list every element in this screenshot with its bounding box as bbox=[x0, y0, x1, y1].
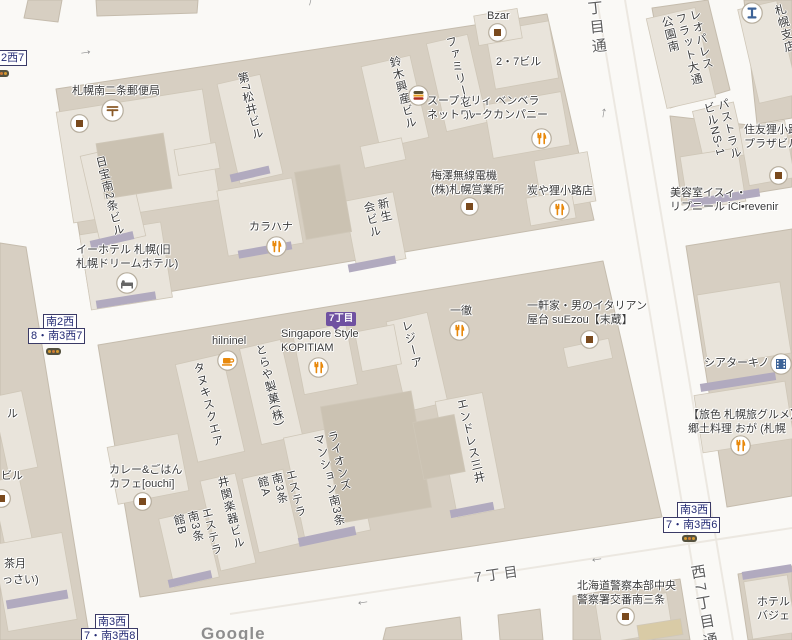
restaurant-icon[interactable] bbox=[549, 199, 570, 225]
generic-icon[interactable] bbox=[616, 607, 635, 631]
poi-label[interactable]: っさい) bbox=[2, 574, 39, 588]
poi-label-line: リプニール iCi•revenir bbox=[670, 201, 778, 215]
block-address-badge: 2西7 bbox=[0, 50, 27, 66]
traffic-light-dot bbox=[692, 537, 695, 540]
restaurant-icon[interactable] bbox=[449, 320, 470, 346]
poi-label[interactable]: 住友狸小路プラザビル bbox=[744, 124, 792, 151]
traffic-light-dot bbox=[4, 72, 7, 75]
poi-label-line: ネットワークカンパニー bbox=[427, 109, 548, 123]
poi-label-line: ビル bbox=[1, 470, 23, 484]
poi-label[interactable]: イーホテル 札幌(旧札幌ドリームホテル) bbox=[76, 244, 178, 271]
poi-label-line: KOPITIAM bbox=[281, 342, 359, 356]
arcade-7chome-badge[interactable]: 7丁目 bbox=[326, 312, 356, 326]
poi-label[interactable]: 炭や狸小路店 bbox=[527, 185, 593, 199]
poi-label-line: Bzar bbox=[487, 10, 510, 24]
poi-label-line: っさい) bbox=[2, 574, 39, 588]
poi-label-line: スープカリィ ベンベラ bbox=[427, 95, 548, 109]
building-label-vertical[interactable]: エンドレス三井 bbox=[453, 397, 487, 485]
building-label-vertical[interactable]: パストラル ビルNS-1 bbox=[700, 97, 743, 165]
block-address-badge: 7・南3西8 bbox=[81, 628, 138, 640]
generic-icon[interactable] bbox=[0, 489, 11, 513]
traffic-light-dot bbox=[688, 537, 691, 540]
building-label-vertical[interactable]: 日宝南2条ビル bbox=[92, 155, 126, 238]
poi-label[interactable]: ホテルバジェ bbox=[757, 596, 790, 623]
labels-layer: 札幌南二条郵便局Bzar2・7ビルスープカリィ ベンベラネットワークカンパニー梅… bbox=[0, 0, 792, 640]
block-address-badge: 南3西 bbox=[677, 502, 711, 518]
one-way-arrow-icon: → bbox=[77, 41, 94, 60]
traffic-light-dot bbox=[684, 537, 687, 540]
one-way-arrow-icon: ← bbox=[354, 591, 371, 610]
poi-label[interactable]: hilninel bbox=[212, 335, 246, 349]
poi-label[interactable]: ル bbox=[7, 408, 18, 422]
poi-label-line: 【旅色 札幌旅グルメ】 bbox=[688, 409, 792, 423]
poi-label[interactable]: 【旅色 札幌旅グルメ】郷土料理 おが (札幌 bbox=[688, 409, 792, 436]
traffic-light-dot bbox=[48, 350, 51, 353]
poi-label-line: プラザビル bbox=[744, 138, 792, 152]
street-name-label: 7丁目 bbox=[473, 561, 523, 587]
building-label-vertical[interactable]: 第7松井ビル bbox=[234, 71, 265, 142]
traffic-light-icon bbox=[46, 348, 61, 355]
poi-label[interactable]: Singapore StyleKOPITIAM bbox=[281, 328, 359, 355]
map-viewport[interactable]: 札幌南二条郵便局Bzar2・7ビルスープカリィ ベンベラネットワークカンパニー梅… bbox=[0, 0, 792, 640]
hotel-icon[interactable] bbox=[116, 272, 138, 299]
poi-label-line: 一軒家・男のイタリアン bbox=[527, 300, 647, 314]
poi-label[interactable]: カレー&ごはんカフェ[ouchi] bbox=[109, 464, 182, 491]
restaurant-icon[interactable] bbox=[308, 357, 329, 383]
poi-label[interactable]: Bzar bbox=[487, 10, 510, 24]
poi-label-line: (株)札幌営業所 bbox=[431, 184, 504, 198]
generic-icon[interactable] bbox=[70, 114, 89, 138]
restaurant-icon[interactable] bbox=[531, 128, 552, 154]
poi-label-line: 茶月 bbox=[4, 558, 26, 572]
poi-label[interactable]: 茶月 bbox=[4, 558, 26, 572]
restaurant-icon[interactable] bbox=[730, 435, 751, 461]
poi-label-line: hilninel bbox=[212, 335, 246, 349]
poi-label-line: ホテル bbox=[757, 596, 790, 610]
generic-icon[interactable] bbox=[488, 23, 507, 47]
traffic-light-dot bbox=[0, 72, 3, 75]
block-address-badge: 7・南3西6 bbox=[663, 517, 720, 533]
poi-label-line: バジェ bbox=[757, 610, 790, 624]
building-label-vertical[interactable]: 新生 会ビル bbox=[360, 197, 396, 240]
street-name-label: 西7丁目通 bbox=[580, 0, 608, 58]
poi-label-line: カラハナ bbox=[249, 221, 293, 235]
poi-label-line: Singapore Style bbox=[281, 328, 359, 342]
restaurant-icon[interactable] bbox=[266, 236, 287, 262]
building-label-vertical[interactable]: ライオンズ マンション南3条 bbox=[310, 429, 361, 528]
poi-label[interactable]: 一徹 bbox=[450, 305, 472, 319]
google-logo[interactable]: Google bbox=[201, 624, 266, 640]
poi-label[interactable]: 美容室イスィ・リプニール iCi•revenir bbox=[670, 187, 778, 214]
poi-label[interactable]: 札幌南二条郵便局 bbox=[72, 85, 160, 99]
one-way-arrow-icon: ← bbox=[588, 548, 605, 567]
traffic-light-icon bbox=[682, 535, 697, 542]
poi-label[interactable]: スープカリィ ベンベラネットワークカンパニー bbox=[427, 95, 548, 122]
poi-label[interactable]: カラハナ bbox=[249, 221, 293, 235]
poi-label-line: 美容室イスィ・ bbox=[670, 187, 778, 201]
street-name-label: 西7丁目通 bbox=[686, 563, 720, 640]
building-label-vertical[interactable]: レオパレス フラット大通 公園南 bbox=[658, 8, 718, 91]
building-label-vertical[interactable]: 札幌支店 bbox=[771, 3, 792, 55]
generic-icon[interactable] bbox=[460, 197, 479, 221]
one-way-arrow-icon: ↑ bbox=[305, 0, 316, 10]
poi-label-line: 北海道警察本部中央 bbox=[577, 580, 676, 594]
one-way-arrow-icon: ↑ bbox=[599, 103, 609, 121]
poi-label-line: カレー&ごはん bbox=[109, 464, 182, 478]
cafe-icon[interactable] bbox=[217, 350, 238, 376]
clothing-icon[interactable] bbox=[741, 2, 763, 29]
generic-icon[interactable] bbox=[580, 330, 599, 354]
poi-label-line: 屋台 suEzou【末蔵】 bbox=[527, 314, 647, 328]
poi-label-line: 一徹 bbox=[450, 305, 472, 319]
poi-label-line: 警察署交番南三条 bbox=[577, 594, 676, 608]
poi-label-line: カフェ[ouchi] bbox=[109, 478, 182, 492]
poi-label-line: イーホテル 札幌(旧 bbox=[76, 244, 178, 258]
building-label-vertical[interactable]: とらや製菓(株) bbox=[252, 343, 286, 429]
building-label-vertical[interactable]: レジーア bbox=[398, 319, 424, 371]
traffic-light-dot bbox=[56, 350, 59, 353]
fastfood-icon[interactable] bbox=[408, 85, 429, 111]
poi-label-line: ル bbox=[7, 408, 18, 422]
post-icon[interactable] bbox=[101, 99, 124, 127]
building-label-vertical[interactable]: エステラ 南3条 館B bbox=[170, 506, 224, 565]
block-address-badge: 8・南3西7 bbox=[28, 328, 85, 344]
poi-label[interactable]: 梅澤無線電機(株)札幌営業所 bbox=[431, 170, 504, 197]
poi-label-line: 住友狸小路 bbox=[744, 124, 792, 138]
poi-label-line: 炭や狸小路店 bbox=[527, 185, 593, 199]
poi-label-line: 梅澤無線電機 bbox=[431, 170, 504, 184]
poi-label[interactable]: 一軒家・男のイタリアン屋台 suEzou【末蔵】 bbox=[527, 300, 647, 327]
poi-label-line: 札幌南二条郵便局 bbox=[72, 85, 160, 99]
generic-icon[interactable] bbox=[133, 492, 152, 516]
poi-label-line: 2・7ビル bbox=[496, 56, 541, 70]
poi-label[interactable]: ビル bbox=[1, 470, 23, 484]
poi-label[interactable]: シアターキノ bbox=[704, 357, 769, 371]
traffic-light-dot bbox=[52, 350, 55, 353]
building-label-vertical[interactable]: エステラ 南3条 館A bbox=[254, 468, 308, 527]
poi-label-line: 郷土料理 おが (札幌 bbox=[688, 423, 792, 437]
cinema-icon[interactable] bbox=[770, 353, 792, 380]
poi-label-line: シアターキノ bbox=[704, 357, 769, 371]
poi-label-line: 札幌ドリームホテル) bbox=[76, 258, 178, 272]
traffic-light-icon bbox=[0, 70, 9, 77]
poi-label[interactable]: 北海道警察本部中央警察署交番南三条 bbox=[577, 580, 676, 607]
poi-label[interactable]: 2・7ビル bbox=[496, 56, 541, 70]
generic-icon[interactable] bbox=[769, 166, 788, 190]
